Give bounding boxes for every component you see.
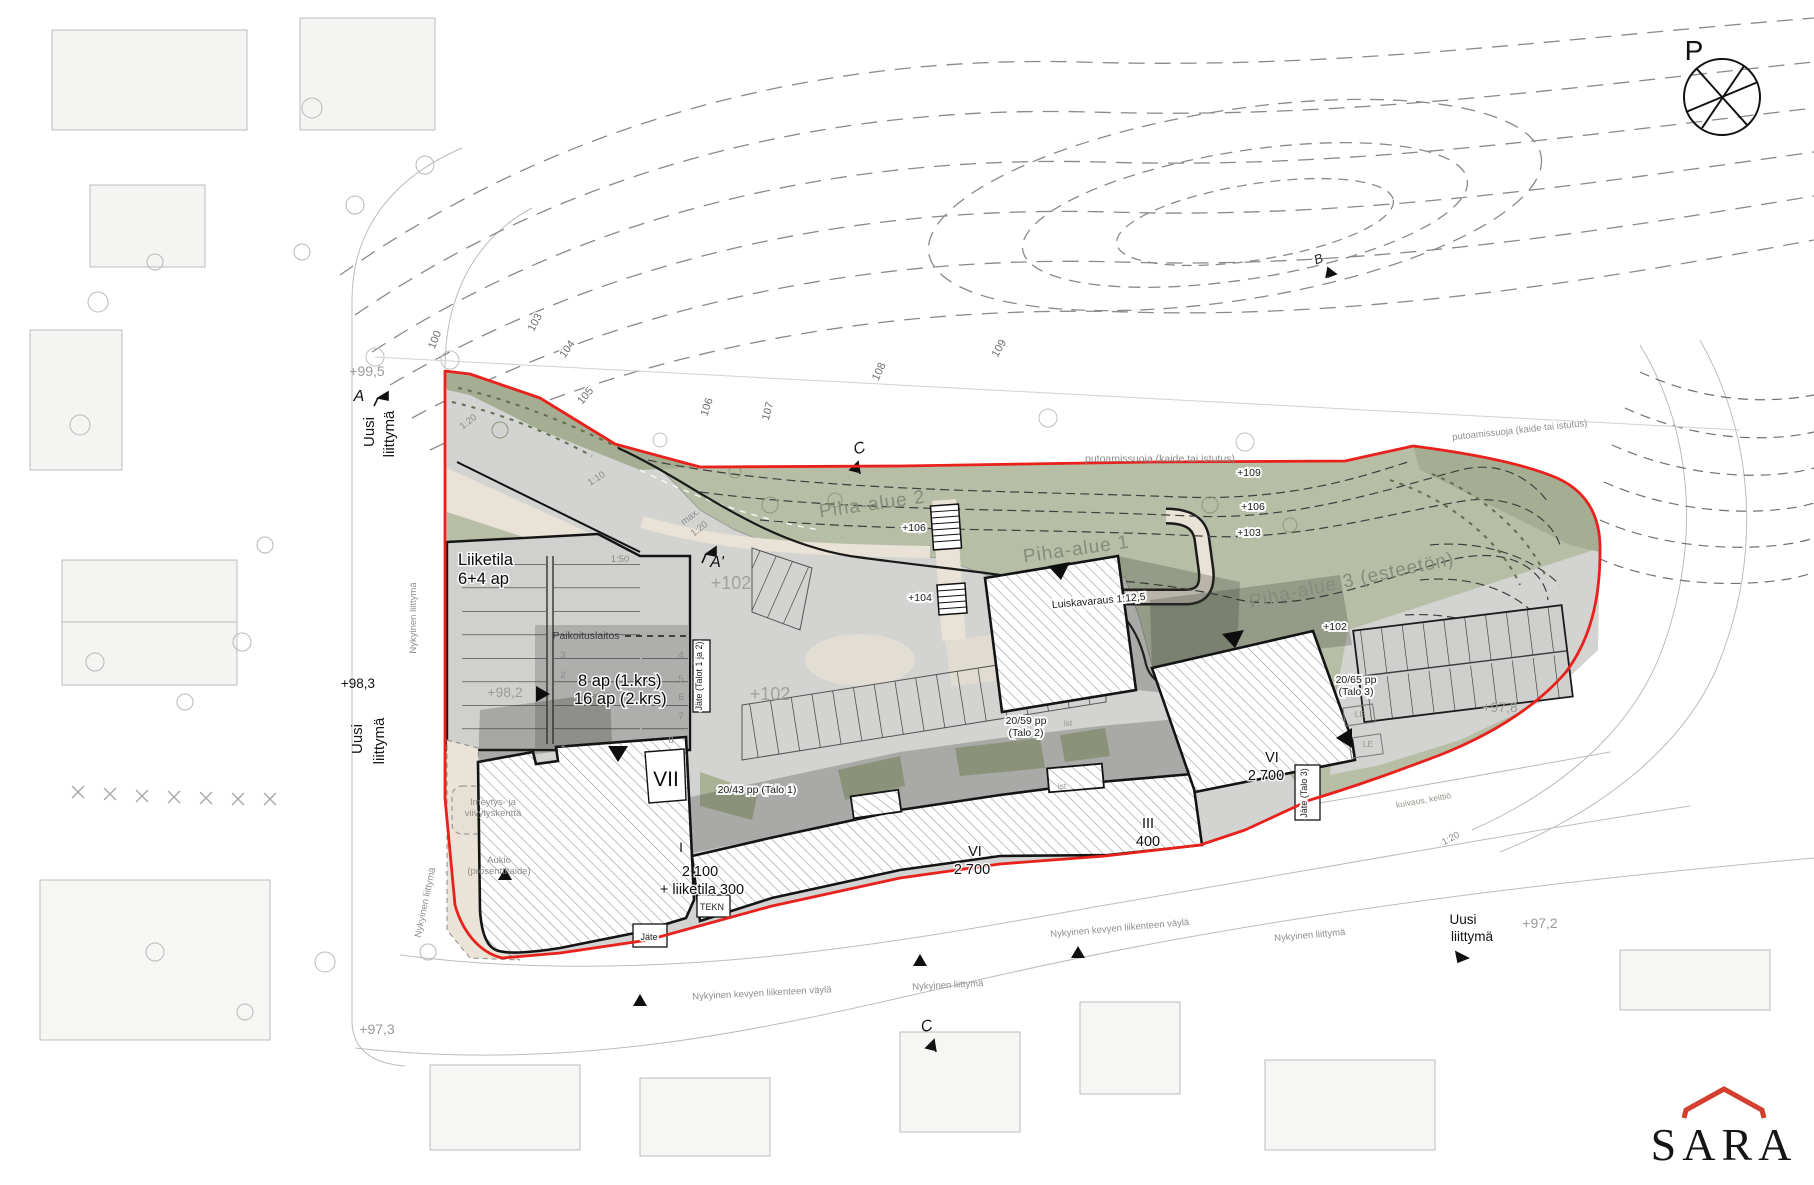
elevation-99-5: +99,5	[349, 363, 385, 379]
plaza-line2: (prosenttitaide)	[467, 866, 530, 877]
liiketila-line2: 6+4 ap	[458, 570, 509, 588]
north-arrow	[1684, 59, 1760, 135]
building-vi-right: VI	[1265, 750, 1279, 766]
contour-lines-right	[1598, 372, 1814, 583]
contour-lines-outer	[340, 18, 1814, 450]
elevation-102-b: +102	[750, 684, 791, 704]
play-le-2: LE	[1363, 739, 1374, 749]
building-vii: VII	[653, 768, 679, 791]
stairs-lower	[937, 583, 967, 615]
fall-protection-2: putoamissuoja (kaide tai istutus)	[1452, 418, 1588, 443]
street-marker-4	[913, 954, 927, 966]
elevation-97-8: +97,8	[1482, 699, 1518, 715]
section-marker-a2: A'	[709, 554, 725, 571]
elevation-109: +109	[1237, 467, 1261, 479]
slope-1-50: 1:50	[611, 554, 630, 565]
elevation-98-2: +98,2	[487, 684, 523, 700]
new-junction-1-line2: liittymä	[381, 410, 398, 457]
plaza-line1: Aukio	[487, 855, 511, 866]
bikes-talo-3-line1: 20/65 pp	[1336, 674, 1377, 686]
bikes-talo-2-line2: (Talo 2)	[1008, 727, 1043, 739]
area-vi-mid: 2 700	[954, 862, 990, 878]
bikes-talo-3-line2: (Talo 3)	[1338, 686, 1373, 698]
contour-label-105: 105	[575, 385, 596, 407]
street-marker-3	[1071, 946, 1085, 958]
bikes-talo-2-line1: 20/59 pp	[1006, 715, 1047, 727]
parking-16ap: 16 ap (2.krs)	[574, 690, 667, 708]
building-i: I	[679, 840, 683, 855]
area-liiketila-300: + liiketila 300	[660, 882, 744, 898]
contour-label-108: 108	[870, 361, 889, 383]
stall-number-2: 2	[560, 670, 565, 681]
stall-number-7: 7	[678, 711, 683, 722]
area-2100: 2 100	[682, 864, 718, 880]
waste-talo-3: Jäte (Talo 3)	[1299, 768, 1309, 818]
elevation-106-r: +106	[1241, 501, 1265, 513]
waste-talo-1-2: Jäte (Talot 1 ja 2)	[694, 641, 704, 710]
new-junction-3-line1: Uusi	[1449, 912, 1476, 927]
infiltration-field-line1: Imeytys- ja	[470, 797, 517, 808]
stall-number-1: 1	[560, 739, 565, 750]
new-junction-1-line1: Uusi	[361, 417, 378, 447]
new-junction-2-line1: Uusi	[349, 724, 366, 754]
elevation-103-r: +103	[1237, 527, 1261, 539]
stairs-upper	[930, 504, 961, 550]
contour-label-109: 109	[990, 338, 1010, 360]
stall-number-4: 4	[678, 650, 683, 661]
infiltration-field-line2: viivytyskenttä	[465, 808, 522, 819]
planting-ist-1: ist	[1064, 718, 1073, 728]
drying-kitchen: kuivaus, keittiö	[1395, 790, 1452, 810]
north-p-label: P	[1685, 35, 1704, 66]
section-marker-c-top: C	[851, 439, 868, 459]
tekn-room: TEKN	[700, 902, 724, 912]
stall-number-6: 6	[678, 692, 683, 703]
new-junction-2-line2: liittymä	[371, 717, 388, 764]
building-iii: III	[1142, 816, 1154, 832]
fence-marks	[72, 786, 276, 805]
contour-label-103: 103	[526, 312, 545, 334]
existing-junction-4: Nykyinen liittymä	[1274, 927, 1347, 944]
area-vi-right: 2 700	[1248, 768, 1284, 784]
stall-number-5: 5	[678, 674, 683, 685]
planting-ist-2: ist	[1058, 781, 1067, 791]
liiketila-line1: Liiketila	[458, 551, 514, 569]
existing-junction-3: Nykyinen liittymä	[912, 978, 984, 993]
contour-label-100: 100	[426, 329, 444, 351]
sara-logo: SARA	[1651, 1089, 1798, 1170]
courtyard-plaza-1	[805, 634, 915, 686]
area-iii: 400	[1136, 834, 1160, 850]
stall-number-3: 3	[560, 650, 565, 661]
new-junction-3-line2: liittymä	[1451, 929, 1493, 944]
parking-8ap: 8 ap (1.krs)	[578, 672, 661, 690]
elevation-97-2: +97,2	[1522, 915, 1558, 931]
site-plan-page: SARA P 100103104105106107108109+99,5AUus…	[0, 0, 1814, 1185]
street-marker-2	[633, 994, 647, 1006]
elevation-97-3: +97,3	[359, 1021, 395, 1037]
contour-label-107: 107	[760, 401, 776, 422]
contour-label-104: 104	[557, 338, 577, 360]
paikoituslaitos: Paikoituslaitos	[552, 630, 619, 642]
contour-label-106: 106	[699, 396, 716, 417]
stall-number-8: 8	[668, 735, 673, 746]
site-plan-drawing: SARA P 100103104105106107108109+99,5AUus…	[0, 0, 1814, 1185]
elevation-98-3: +98,3	[341, 676, 375, 691]
elevation-106-mid: +106	[902, 522, 926, 534]
existing-pedestrian-way-2: Nykyinen kevyen liikenteen väylä	[1050, 917, 1191, 940]
existing-junction-1: Nykyinen liittymä	[408, 582, 419, 654]
existing-pedestrian-way-1: Nykyinen kevyen liikenteen väylä	[692, 984, 833, 1002]
elevation-102-a: +102	[711, 573, 752, 593]
play-le-1: LE	[1355, 709, 1366, 719]
bikes-talo-1: 20/43 pp (Talo 1)	[718, 784, 797, 796]
elevation-102-r: +102	[1323, 621, 1347, 633]
waste-1: Jäte	[640, 932, 657, 942]
existing-junction-2: Nykyinen liittymä	[413, 866, 439, 939]
sara-logo-text: SARA	[1651, 1119, 1798, 1170]
building-vi-mid: VI	[968, 844, 982, 860]
elevation-104-mid: +104	[908, 592, 932, 604]
sara-roof-icon	[1684, 1089, 1764, 1118]
section-marker-a: A	[353, 388, 365, 405]
fall-protection-1: putoamissuoja (kaide tai istutus)	[1085, 453, 1235, 465]
stair-core-2	[1047, 764, 1104, 793]
